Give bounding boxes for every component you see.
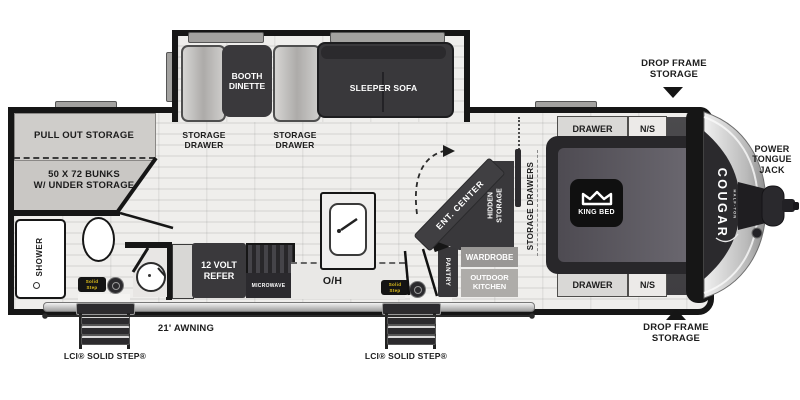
solid-step-label-front: LCI® SOLID STEP®	[356, 352, 456, 362]
power-tongue-jack-label: POWER TONGUE JACK	[741, 144, 800, 175]
hidden-storage-line2: STORAGE	[496, 188, 504, 223]
cougar-logo: COUGAR	[714, 165, 730, 241]
kitchen-faucet-base	[337, 229, 341, 233]
awning-end-right	[529, 313, 535, 319]
solid-step-label-rear: LCI® SOLID STEP®	[55, 352, 155, 362]
ptj-line3: JACK	[741, 165, 800, 175]
drop-frame-arrow-up-icon	[666, 309, 686, 320]
awning-end-left	[42, 313, 48, 319]
kitchen-faucet	[341, 219, 357, 230]
bath-door-swing	[120, 213, 173, 228]
bunks-angled-wall	[116, 158, 156, 214]
tv-swivel-arrow-icon	[443, 145, 455, 157]
hidden-storage-label: HIDDEN STORAGE	[488, 164, 505, 248]
tongue-jack-body	[762, 186, 784, 226]
cougar-logo-sub: HALF-TON	[732, 185, 739, 225]
pantry-label: PANTRY	[442, 249, 454, 295]
awning-label: 21' AWNING	[150, 324, 222, 335]
drop-frame-top-line2: STORAGE	[627, 70, 721, 81]
storage-drawers-label: STORAGE DRAWERS	[524, 158, 536, 254]
drop-frame-storage-top-label: DROP FRAME STORAGE	[627, 59, 721, 80]
hidden-storage-line1: HIDDEN	[488, 192, 496, 219]
ptj-line1: POWER	[741, 144, 800, 154]
tongue-jack-tip	[793, 202, 799, 210]
front-door-leaf	[405, 251, 409, 295]
shower-label: SHOWER	[33, 222, 45, 292]
front-door-swing	[423, 249, 437, 296]
corner-sink-edge	[133, 248, 148, 272]
tongue-jack-knob	[752, 228, 762, 238]
corner-sink-faucet	[158, 268, 165, 276]
drop-frame-bottom-line2: STORAGE	[629, 334, 723, 345]
drop-frame-storage-bottom-label: DROP FRAME STORAGE	[629, 323, 723, 344]
drop-frame-arrow-down-icon	[663, 87, 683, 98]
tv-swivel-arc	[416, 151, 444, 214]
floorplan-canvas: PULL OUT STORAGE 50 X 72 BUNKS W/ UNDER …	[0, 0, 800, 400]
ptj-line2: TONGUE	[741, 154, 800, 164]
